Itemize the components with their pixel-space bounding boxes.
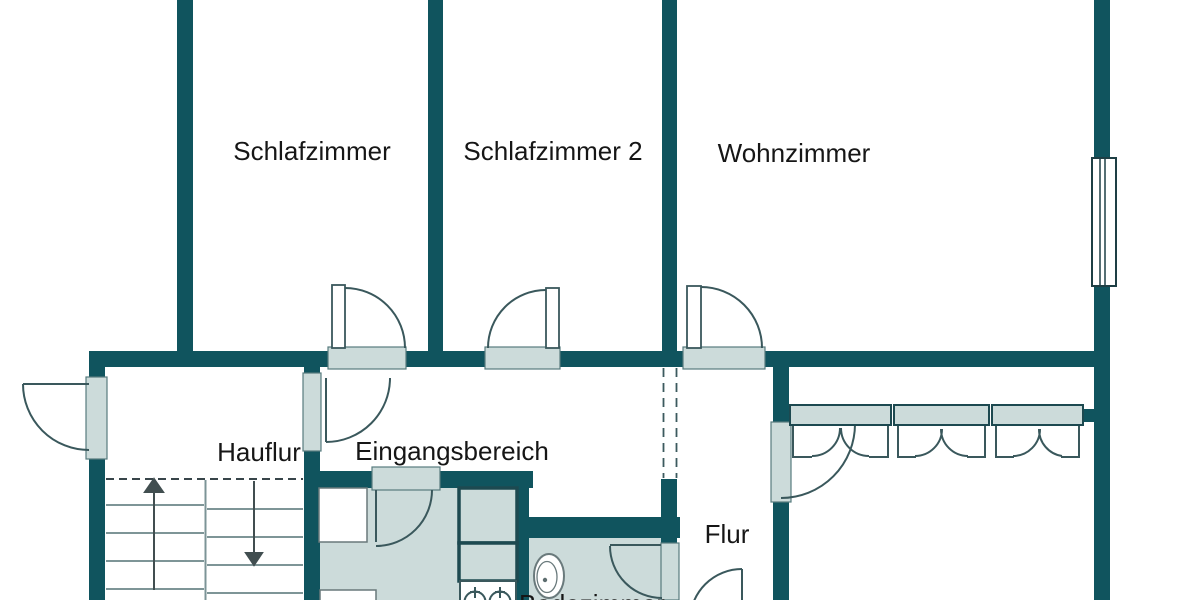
svg-text:Badezimmer: Badezimmer xyxy=(519,589,665,600)
svg-text:Hauflur: Hauflur xyxy=(217,437,301,467)
svg-text:Eingangsbereich: Eingangsbereich xyxy=(355,436,549,466)
svg-text:Wohnzimmer: Wohnzimmer xyxy=(718,138,871,168)
svg-text:Schlafzimmer: Schlafzimmer xyxy=(233,136,391,166)
svg-text:Flur: Flur xyxy=(705,519,750,549)
svg-text:Schlafzimmer 2: Schlafzimmer 2 xyxy=(463,136,642,166)
